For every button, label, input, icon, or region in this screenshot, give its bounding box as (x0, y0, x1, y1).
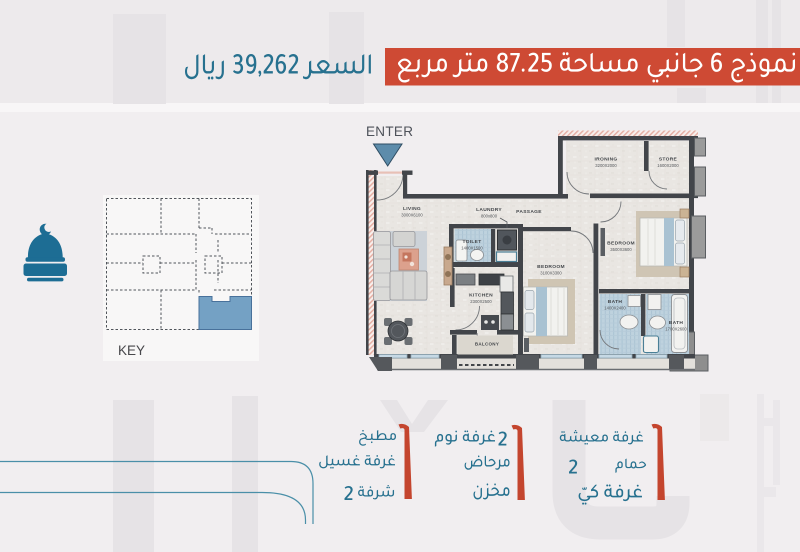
svg-text:BALCONY: BALCONY (475, 342, 499, 347)
svg-text:2300X2500: 2300X2500 (470, 299, 492, 304)
svg-text:LIVING: LIVING (403, 206, 421, 212)
svg-text:1600X2000: 1600X2000 (657, 163, 679, 168)
svg-text:3200X2000: 3200X2000 (595, 163, 617, 168)
svg-text:ENTER: ENTER (366, 124, 413, 139)
svg-text:LAUNDRY: LAUNDRY (476, 207, 502, 213)
svg-text:1400X2400: 1400X2400 (604, 306, 626, 311)
svg-text:800x800: 800x800 (481, 214, 498, 219)
svg-text:STORE: STORE (659, 157, 678, 163)
svg-text:TOILET: TOILET (462, 239, 481, 245)
svg-text:BEDROOM: BEDROOM (537, 264, 565, 270)
svg-text:1400X1500: 1400X1500 (461, 246, 483, 251)
svg-text:IRONING: IRONING (594, 157, 617, 163)
svg-text:BATH: BATH (608, 299, 623, 305)
svg-text:BEDROOM: BEDROOM (607, 241, 635, 247)
svg-text:3100X3300: 3100X3300 (540, 271, 562, 276)
svg-text:3500X3600: 3500X3600 (610, 247, 632, 252)
svg-text:BATH: BATH (669, 320, 684, 326)
svg-text:1700X2600: 1700X2600 (665, 327, 687, 332)
svg-text:KEY: KEY (118, 343, 145, 358)
svg-text:KITCHEN: KITCHEN (469, 293, 493, 299)
svg-text:3000X6100: 3000X6100 (401, 213, 423, 218)
svg-text:PASSAGE: PASSAGE (516, 209, 542, 215)
